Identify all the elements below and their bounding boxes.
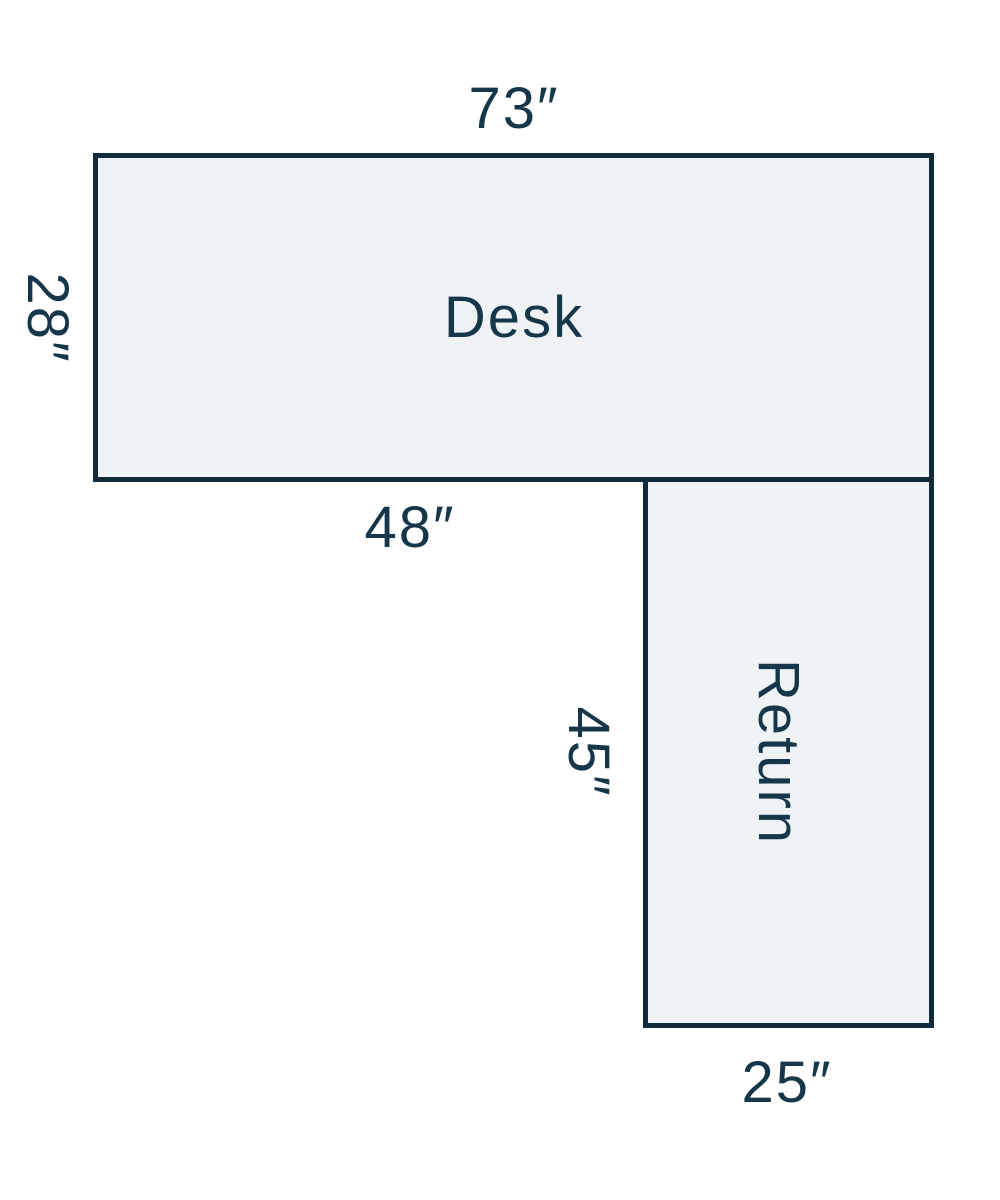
return-label: Return bbox=[749, 659, 807, 845]
desk-label: Desk bbox=[444, 289, 584, 347]
desk-bottom-segment-dimension: 48″ bbox=[364, 499, 455, 557]
return-length-dimension: 45″ bbox=[559, 706, 617, 797]
desk-width-dimension: 73″ bbox=[468, 80, 559, 138]
return-width-dimension: 25″ bbox=[741, 1054, 832, 1112]
desk-dimension-diagram: 73″ 28″ Desk 48″ 45″ Return 25″ bbox=[0, 0, 1000, 1200]
desk-depth-dimension: 28″ bbox=[18, 272, 76, 363]
